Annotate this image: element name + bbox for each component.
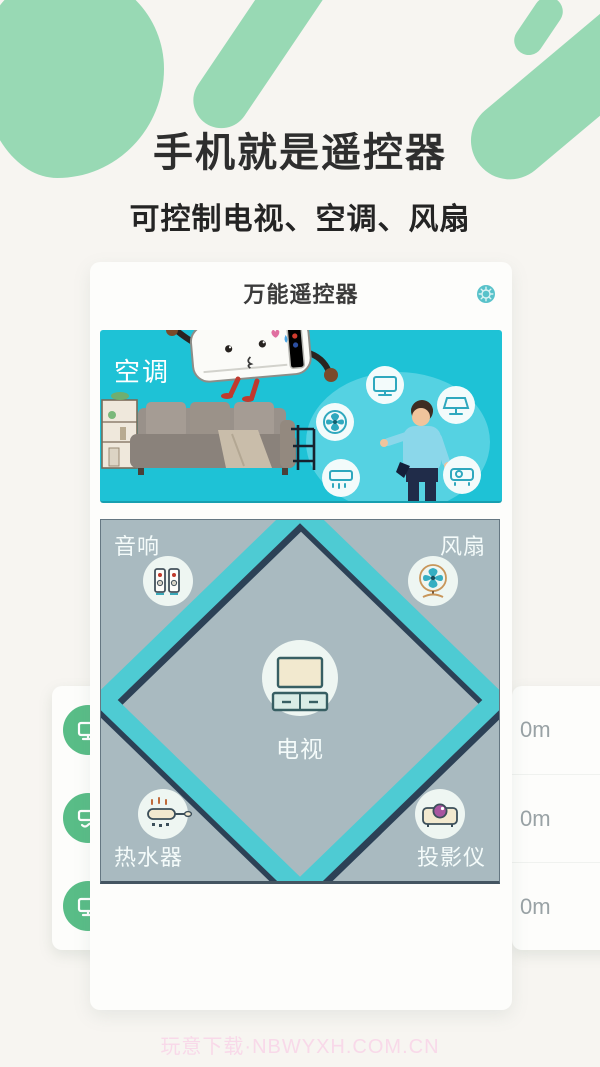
- distance-row[interactable]: 0m: [512, 774, 600, 862]
- promo-screenshot: 手机就是遥控器 可控制电视、空调、风扇 0m 0m 0m: [0, 0, 600, 1067]
- watermark: 玩意下载·NBWYXH.COM.CN: [0, 1030, 600, 1059]
- speakers-icon: [143, 556, 193, 606]
- app-header: 万能遥控器: [90, 262, 512, 324]
- hero-subtitle: 可控制电视、空调、风扇: [0, 194, 600, 238]
- carousel-card-right[interactable]: 0m 0m 0m: [512, 686, 600, 950]
- room-grid-art: [101, 520, 499, 881]
- distance-value: 0m: [512, 806, 551, 832]
- grid-cell-fan[interactable]: 风扇: [440, 529, 486, 561]
- distance-row[interactable]: 0m: [512, 862, 600, 950]
- green-pill-shape: [182, 0, 357, 139]
- ac-cartoon: [166, 330, 338, 402]
- distance-value: 0m: [512, 894, 551, 920]
- grid-cell-projector[interactable]: 投影仪: [417, 840, 486, 872]
- sofa-scene: [102, 392, 314, 475]
- ac-banner[interactable]: 空调: [100, 330, 502, 503]
- banner-device-label: 空调: [114, 352, 170, 389]
- tv-icon: [262, 640, 338, 716]
- room-grid: 音响 风扇 热水器 投影仪 电视: [100, 519, 500, 884]
- grid-cell-speakers[interactable]: 音响: [114, 529, 160, 561]
- fan-icon: [324, 411, 346, 433]
- distance-value: 0m: [512, 717, 551, 743]
- projector-icon: [415, 789, 465, 839]
- grid-cell-water-heater[interactable]: 热水器: [114, 840, 183, 872]
- hero-title: 手机就是遥控器: [0, 120, 600, 178]
- fan-icon: [408, 556, 458, 606]
- gear-icon[interactable]: [476, 284, 496, 304]
- app-screenshot-card: 万能遥控器: [90, 262, 512, 1010]
- app-title: 万能遥控器: [243, 277, 358, 309]
- grid-cell-tv[interactable]: 电视: [101, 730, 499, 764]
- distance-row[interactable]: 0m: [512, 686, 600, 774]
